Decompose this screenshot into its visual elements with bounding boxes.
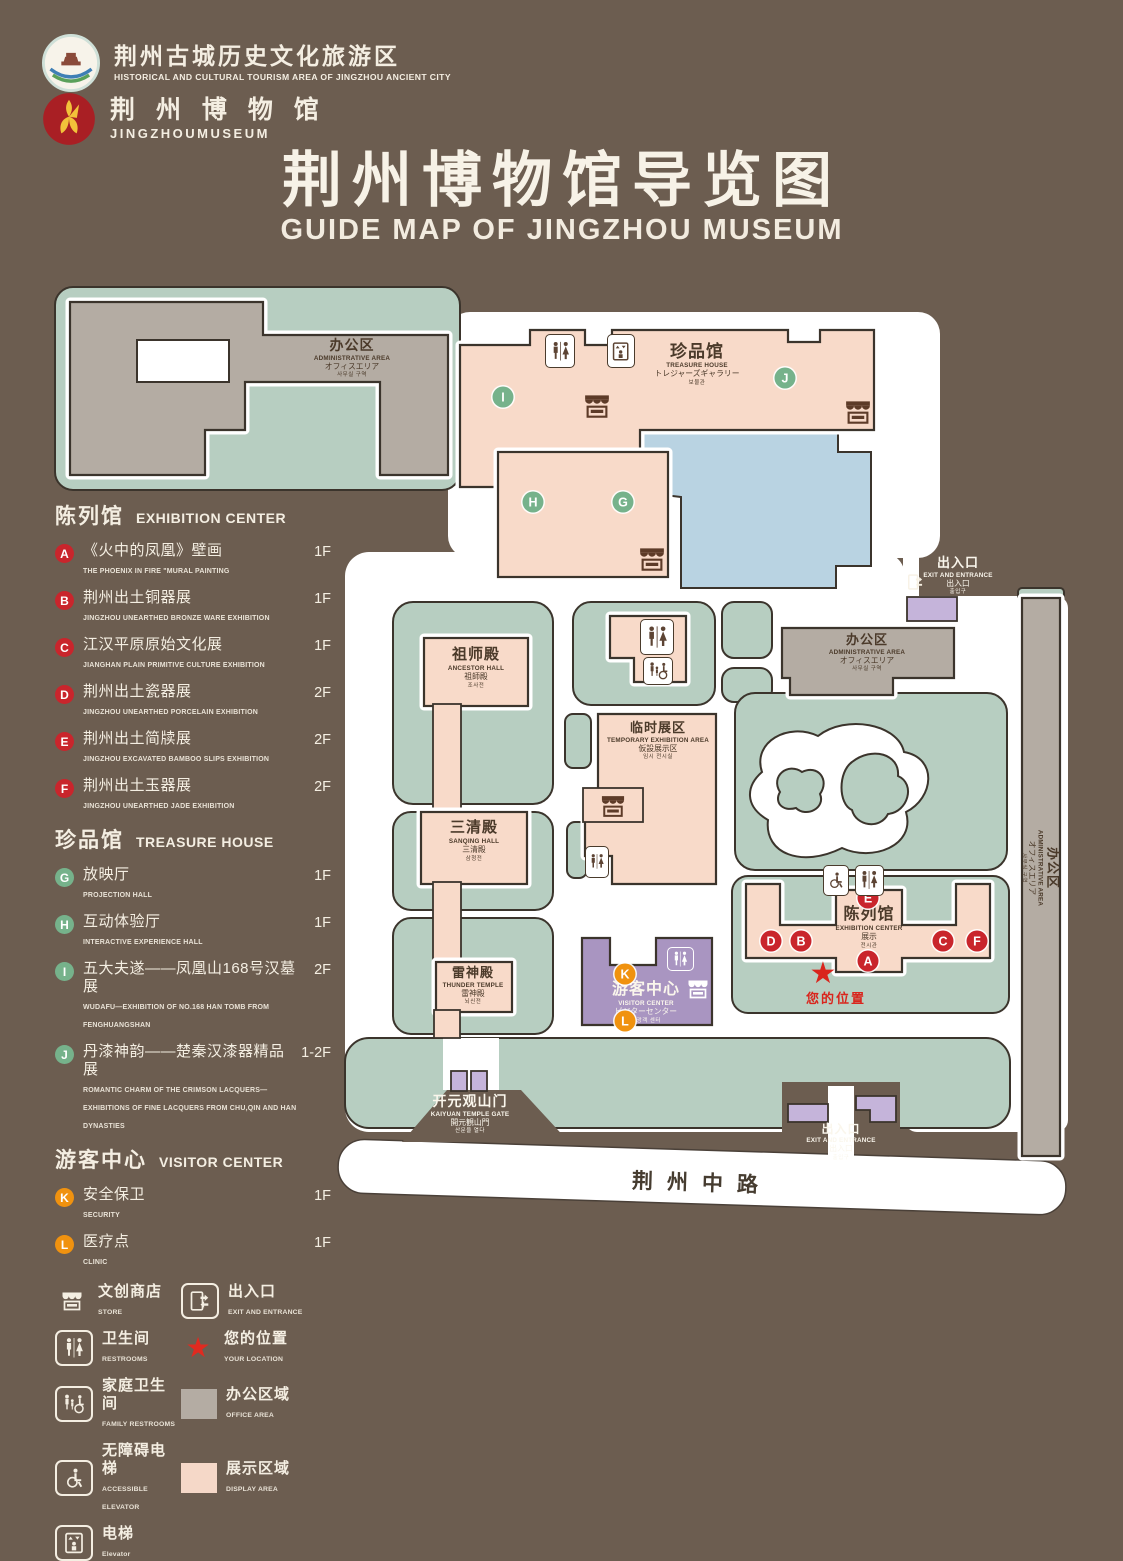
badge-D: D <box>761 931 782 952</box>
badge-I: I <box>493 387 514 408</box>
restroom-icon <box>667 947 694 971</box>
badge-C: C <box>55 638 74 657</box>
gate-pillar-west <box>451 1071 467 1091</box>
badge-H: H <box>523 492 544 513</box>
road-label: 荆州中路 <box>632 1165 773 1199</box>
restroom-icon <box>855 865 884 896</box>
badge-B: B <box>55 591 74 610</box>
admin-strip-label: 办公区 ADMINISTRATIVE AREA オフィスエリア 사무실 구역 <box>1020 830 1059 906</box>
legend-item-E: E 荆州出土简牍展 JINGZHOU EXCAVATED BAMBOO SLIP… <box>55 730 331 766</box>
section-treasure-house: 珍品馆 TREASURE HOUSE <box>55 824 331 854</box>
accessible-elevator-icon <box>823 865 849 896</box>
legend-item-A: A 《火中的凤凰》壁画 THE PHOENIX IN FIRE "MURAL P… <box>55 542 331 578</box>
store-icon <box>685 977 711 1001</box>
accessible-elevator-icon <box>55 1460 93 1496</box>
badge-E: E <box>55 732 74 751</box>
admin-east-label: 办公区 ADMINISTRATIVE AREA オフィスエリア 사무실 구역 <box>829 633 905 672</box>
temporary-exhibition-label: 临时展区 TEMPORARY EXHIBITION AREA 仮設展示区 임시 … <box>607 721 709 760</box>
south-exit-label: 出入口 EXIT AND ENTRANCE 出入口 출입구 <box>806 1123 875 1161</box>
gate-pillar-east <box>471 1071 487 1091</box>
badge-J: J <box>775 368 796 389</box>
exhibition-center-label: 陈列馆 EXHIBITION CENTER 展示 전시관 <box>835 906 902 949</box>
small-green-3 <box>565 714 591 768</box>
guide-map-poster: { "palette": { "background": "#6c5d50", … <box>0 0 1123 1280</box>
thunder-temple-corridor <box>434 1010 460 1038</box>
museum-phoenix-emblem-icon <box>42 92 96 146</box>
tourism-area-name-en: HISTORICAL AND CULTURAL TOURISM AREA OF … <box>114 72 451 82</box>
sanqing-hall-corridor <box>433 882 461 964</box>
office-area-swatch <box>181 1389 217 1419</box>
badge-A: A <box>858 951 879 972</box>
sanqing-hall-label: 三清殿 SANQING HALL 三清殿 삼청전 <box>449 820 499 862</box>
family-restroom-icon <box>643 657 673 685</box>
legend-sidebar: 陈列馆 EXHIBITION CENTER A 《火中的凤凰》壁画 THE PH… <box>55 496 331 1561</box>
legend-item-D: D 荆州出土瓷器展 JINGZHOU UNEARTHED PORCELAIN E… <box>55 683 331 719</box>
badge-G: G <box>613 492 634 513</box>
elevator-icon <box>55 1525 93 1561</box>
legend-item-I: I 五大夫遂——凤凰山168号汉墓展 WUDAFU—EXHIBITION OF … <box>55 960 331 1032</box>
admin-northwest-label: 办公区 ADMINISTRATIVE AREA オフィスエリア 사무실 구역 <box>314 338 390 379</box>
store-icon <box>842 397 874 427</box>
legend-item-B: B 荆州出土铜器展 JINGZHOU UNEARTHED BRONZE WARE… <box>55 589 331 625</box>
page-subtitle: GUIDE MAP OF JINGZHOU MUSEUM <box>281 214 844 247</box>
thunder-temple-label: 雷神殿 THUNDER TEMPLE 雷神殿 뇌신전 <box>443 966 504 1005</box>
badge-I: I <box>55 962 74 981</box>
legend-store: 文创商店 STORE <box>55 1283 181 1319</box>
treasure-house-label: 珍品馆 TREASURE HOUSE トレジャーズギャラリー 보물관 <box>655 342 740 386</box>
north-entrance-label: 出入口 EXIT AND ENTRANCE 出入口 출입구 <box>923 556 992 595</box>
restroom-icon <box>640 619 674 655</box>
badge-K: K <box>55 1188 74 1207</box>
your-location-label: 您的位置 <box>806 988 866 1007</box>
legend-item-H: H 互动体验厅 INTERACTIVE EXPERIENCE HALL 1F <box>55 913 331 949</box>
your-location-star-icon: ★ <box>810 959 837 989</box>
badge-A: A <box>55 544 74 563</box>
legend-restrooms: 卫生间 RESTROOMS <box>55 1330 181 1366</box>
museum-name-cn: 荆 州 博 物 馆 <box>110 97 326 123</box>
badge-J: J <box>55 1045 74 1064</box>
store-icon <box>636 544 668 574</box>
legend-display-area: 展示区域 DISPLAY AREA <box>181 1442 331 1514</box>
legend-elevator: 电梯 Elevator <box>55 1525 181 1561</box>
family-restroom-icon <box>55 1386 93 1422</box>
legend-item-G: G 放映厅 PROJECTION HALL 1F <box>55 866 331 902</box>
badge-B: B <box>791 931 812 952</box>
legend-item-J: J 丹漆神韵——楚秦汉漆器精品展 ROMANTIC CHARM OF THE C… <box>55 1043 331 1133</box>
legend-accessible-elevator: 无障碍电梯 ACCESSIBLE ELEVATOR <box>55 1442 181 1514</box>
north-entrance-building <box>907 597 957 621</box>
badge-L: L <box>615 1011 636 1032</box>
store-icon <box>598 792 628 820</box>
section-exhibition-center: 陈列馆 EXHIBITION CENTER <box>55 500 331 530</box>
ancestor-hall-label: 祖师殿 ANCESTOR HALL 祖師殿 조사전 <box>448 647 504 689</box>
legend-exit: 出入口 EXIT AND ENTRANCE <box>181 1283 331 1319</box>
south-exit-building-west <box>788 1104 828 1122</box>
kaiyuan-gate-label: 开元观山门 KAIYUAN TEMPLE GATE 開元観山門 산문을 열다 <box>431 1094 510 1135</box>
badge-D: D <box>55 685 74 704</box>
store-icon <box>55 1285 89 1317</box>
badge-F: F <box>967 931 988 952</box>
garden-island-west <box>777 769 824 812</box>
exit-entrance-icon <box>181 1283 219 1319</box>
ancestor-hall-corridor <box>433 704 461 812</box>
page-title: 荆州博物馆导览图 <box>282 132 842 219</box>
badge-G: G <box>55 868 74 887</box>
restroom-icon <box>585 846 609 878</box>
admin-courtyard <box>137 340 229 382</box>
your-location-star-icon: ★ <box>181 1334 215 1362</box>
icon-legend: 文创商店 STORE 出入口 EXIT AND ENTRANCE 卫生间 RES… <box>55 1283 331 1561</box>
exit-entrance-icon <box>906 571 925 593</box>
badge-F: F <box>55 779 74 798</box>
restroom-icon <box>545 334 575 368</box>
legend-item-L: L 医疗点 CLINIC 1F <box>55 1233 331 1269</box>
tourism-area-name-cn: 荆州古城历史文化旅游区 <box>114 44 451 69</box>
elevator-icon <box>607 334 635 368</box>
legend-your-location: ★ 您的位置 YOUR LOCATION <box>181 1330 331 1366</box>
badge-K: K <box>615 964 636 985</box>
display-area-swatch <box>181 1463 217 1493</box>
badge-C: C <box>933 931 954 952</box>
legend-item-C: C 江汉平原原始文化展 JIANGHAN PLAIN PRIMITIVE CUL… <box>55 636 331 672</box>
small-green-1 <box>722 602 772 658</box>
legend-item-K: K 安全保卫 SECURITY 1F <box>55 1186 331 1222</box>
section-visitor-center: 游客中心 VISITOR CENTER <box>55 1144 331 1174</box>
legend-item-F: F 荆州出土玉器展 JINGZHOU UNEARTHED JADE EXHIBI… <box>55 777 331 813</box>
tourism-area-logo-text: 荆州古城历史文化旅游区 HISTORICAL AND CULTURAL TOUR… <box>114 44 451 82</box>
legend-family-restrooms: 家庭卫生间 FAMILY RESTROOMS <box>55 1377 181 1431</box>
tourism-area-emblem-icon <box>42 34 100 92</box>
badge-H: H <box>55 915 74 934</box>
tourism-area-logo: 荆州古城历史文化旅游区 HISTORICAL AND CULTURAL TOUR… <box>42 34 451 92</box>
legend-office-area: 办公区域 OFFICE AREA <box>181 1377 331 1431</box>
restroom-icon <box>55 1330 93 1366</box>
store-icon <box>581 391 613 421</box>
badge-L: L <box>55 1235 74 1254</box>
